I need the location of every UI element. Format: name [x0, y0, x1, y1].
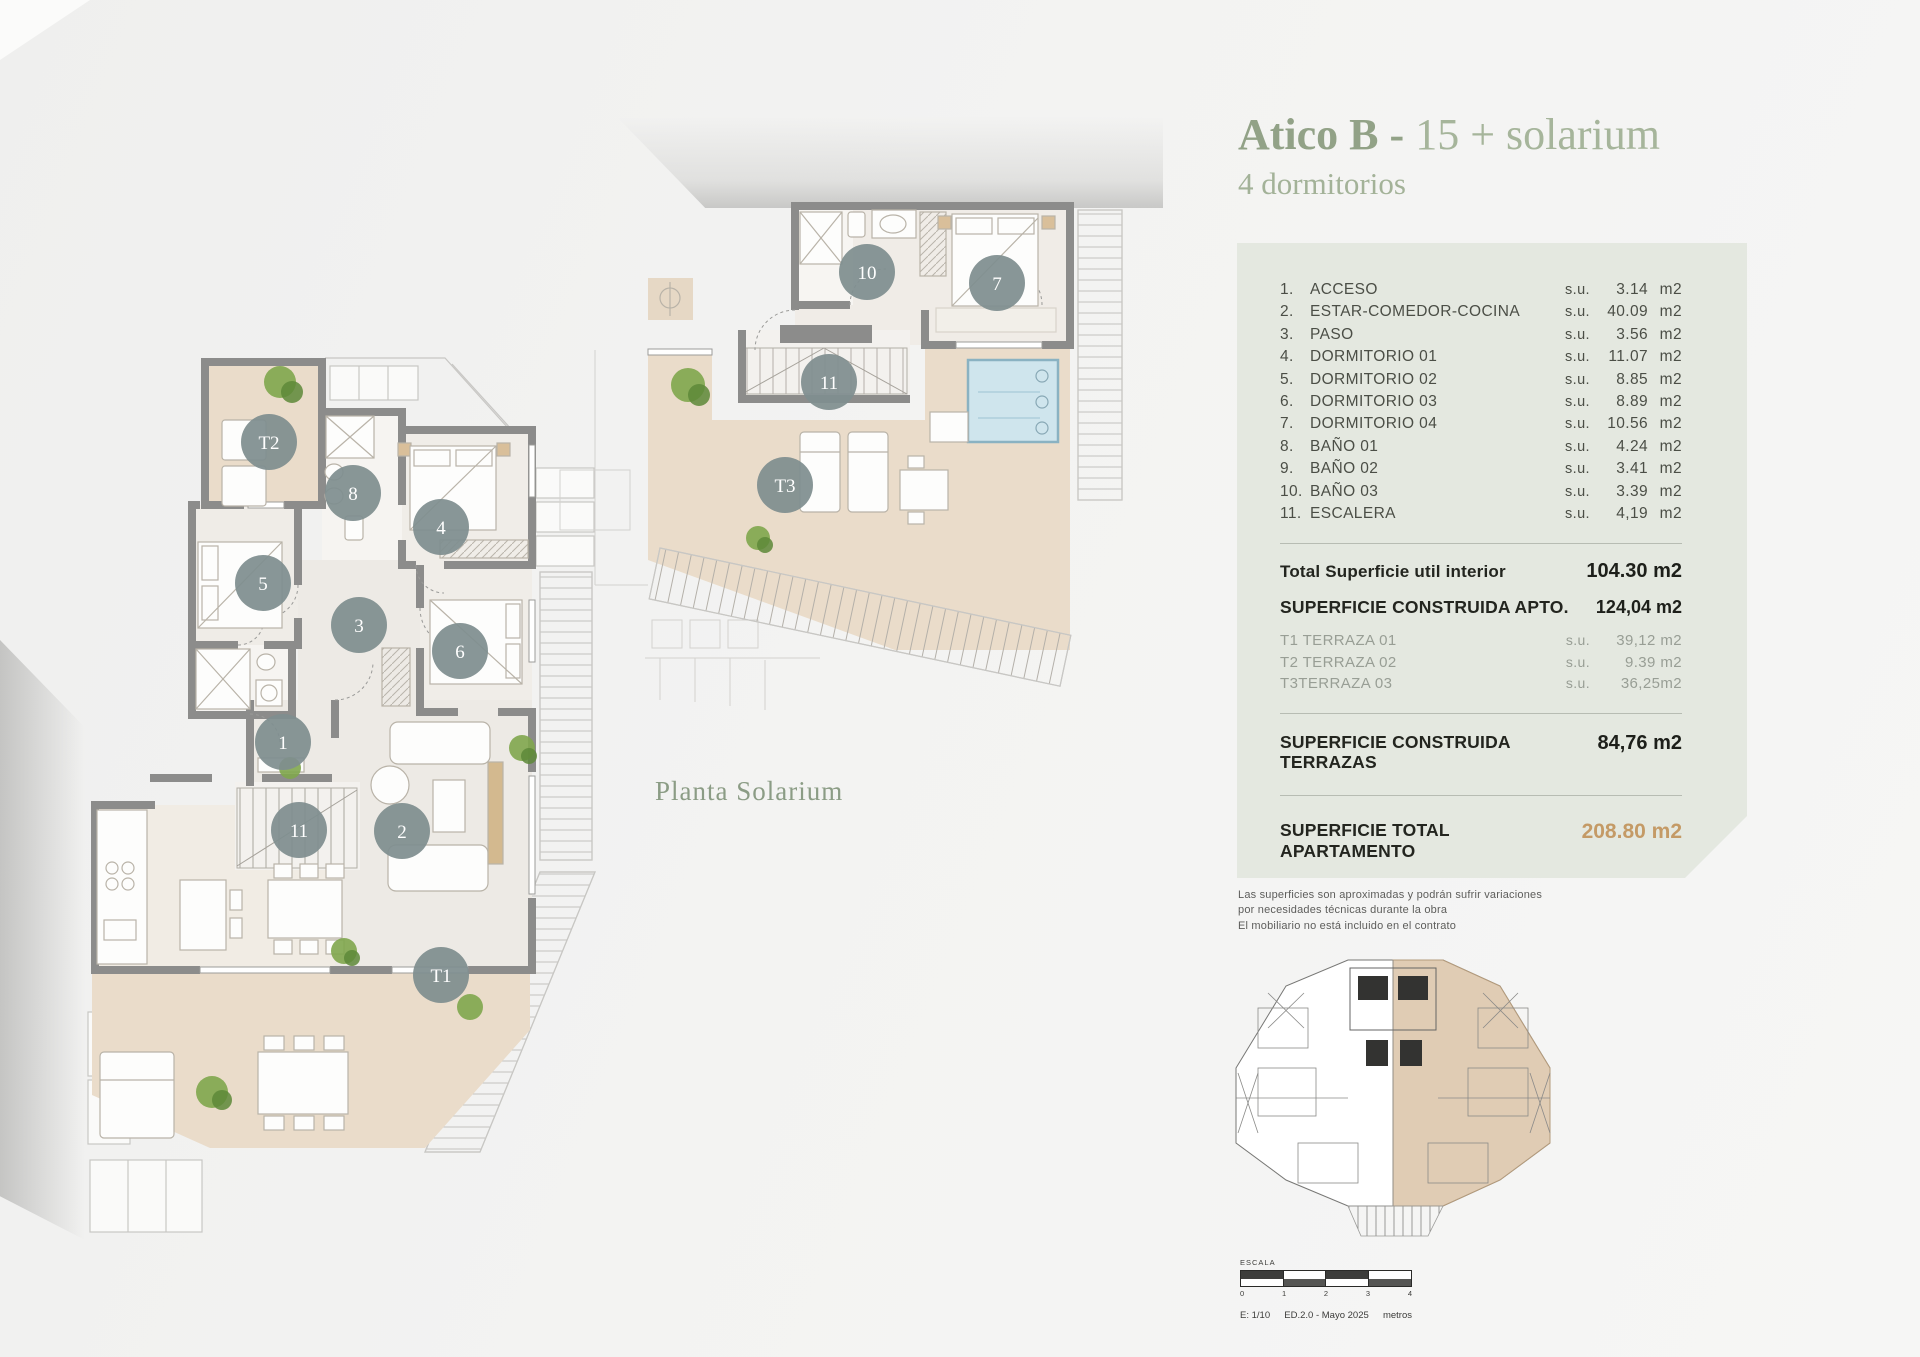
scale-bar-graphic: [1240, 1270, 1412, 1287]
key-plan: [1228, 948, 1563, 1253]
page-title: Atico B - 15 + solarium: [1238, 112, 1858, 158]
scale-unit: metros: [1383, 1310, 1412, 1321]
scale-meta: E: 1/10 ED.2.0 - Mayo 2025 metros: [1240, 1310, 1412, 1321]
total-apartment-row: SUPERFICIE TOTALAPARTAMENTO 208.80 m2: [1280, 820, 1682, 861]
constructed-apto-row: SUPERFICIE CONSTRUIDA APTO. 124,04 m2: [1280, 597, 1682, 618]
svg-text:5: 5: [258, 574, 268, 595]
disclaimer: Las superficies son aproximadas y podrán…: [1238, 888, 1542, 934]
terrace-row: T2 TERRAZA 02s.u.9.39 m2: [1280, 654, 1682, 676]
svg-text:11: 11: [290, 821, 308, 842]
header: Atico B - 15 + solarium 4 dormitorios: [1238, 112, 1858, 202]
svg-text:6: 6: [455, 642, 465, 663]
svg-text:11: 11: [820, 373, 838, 394]
room-row: 10.BAÑO 03s.u.3.39m2: [1280, 483, 1682, 505]
room-row: 8.BAÑO 01s.u.4.24m2: [1280, 438, 1682, 460]
svg-text:T2: T2: [258, 433, 279, 454]
total-apartment-value: 208.80 m2: [1582, 820, 1682, 844]
svg-text:T1: T1: [430, 966, 451, 987]
brochure-page: T2 8 4 5 3 6 1 11 2 T1: [0, 0, 1920, 1357]
divider: [1280, 795, 1682, 796]
room-row: 9.BAÑO 02s.u.3.41m2: [1280, 460, 1682, 482]
terrace-row: T3TERRAZA 03s.u.36,25m2: [1280, 675, 1682, 697]
terrace-row: T1 TERRAZA 01s.u.39,12 m2: [1280, 632, 1682, 654]
scale-label: ESCALA: [1240, 1258, 1412, 1267]
room-list: 1.ACCESOs.u.3.14m2 2.ESTAR-COMEDOR-COCIN…: [1280, 281, 1682, 527]
page-subtitle: 4 dormitorios: [1238, 166, 1858, 202]
svg-text:2: 2: [397, 822, 407, 843]
edition-date: ED.2.0 - Mayo 2025: [1284, 1310, 1369, 1321]
room-row: 2.ESTAR-COMEDOR-COCINAs.u.40.09m2: [1280, 303, 1682, 325]
total-interior-row: Total Superficie util interior 104.30 m2: [1280, 560, 1682, 583]
room-row: 3.PASOs.u.3.56m2: [1280, 326, 1682, 348]
solarium-floor-plan: 10 7 11 T3: [540, 110, 1190, 810]
svg-text:4: 4: [436, 518, 446, 539]
room-row: 1.ACCESOs.u.3.14m2: [1280, 281, 1682, 303]
title-unit: Atico B -: [1238, 110, 1404, 159]
terrace-list: T1 TERRAZA 01s.u.39,12 m2 T2 TERRAZA 02s…: [1280, 632, 1682, 697]
svg-text:T3: T3: [774, 476, 795, 497]
svg-text:7: 7: [992, 274, 1002, 295]
room-row: 6.DORMITORIO 03s.u.8.89m2: [1280, 393, 1682, 415]
scale-ratio: E: 1/10: [1240, 1310, 1270, 1321]
divider: [1280, 713, 1682, 714]
room-row: 4.DORMITORIO 01s.u.11.07m2: [1280, 348, 1682, 370]
title-variant: 15 + solarium: [1404, 110, 1660, 159]
divider: [1280, 543, 1682, 544]
svg-text:8: 8: [348, 484, 358, 505]
room-row: 7.DORMITORIO 04s.u.10.56m2: [1280, 415, 1682, 437]
room-row: 11.ESCALERAs.u.4,19m2: [1280, 505, 1682, 527]
corner-fold-decoration: [0, 0, 90, 60]
room-row: 5.DORMITORIO 02s.u.8.85m2: [1280, 371, 1682, 393]
svg-text:3: 3: [354, 616, 364, 637]
scale-bar: ESCALA 0 1 2 3 4 E: 1/10 ED.2.0 - Mayo 2…: [1240, 1258, 1412, 1321]
svg-text:10: 10: [858, 263, 877, 284]
scale-ticks: 0 1 2 3 4: [1240, 1289, 1412, 1298]
svg-text:1: 1: [278, 733, 288, 754]
constructed-terraces-row: SUPERFICIE CONSTRUIDATERRAZAS 84,76 m2: [1280, 732, 1682, 773]
solarium-caption: Planta Solarium: [655, 776, 843, 807]
surfaces-panel: 1.ACCESOs.u.3.14m2 2.ESTAR-COMEDOR-COCIN…: [1237, 243, 1747, 878]
